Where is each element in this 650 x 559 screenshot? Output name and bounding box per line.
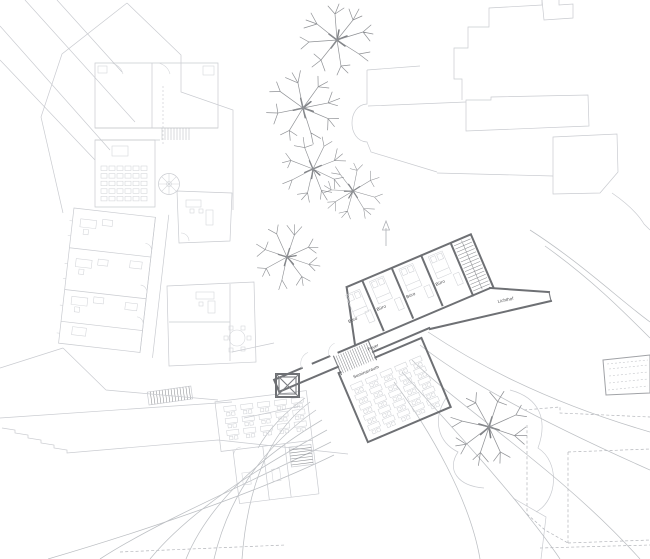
site-plan-page: Büro Büro Büro Büro Foyer Seminarraum Li… [0,0,650,559]
terrace-steps [2,428,348,454]
parcel-boundary-right [127,3,233,210]
terrain-contours [48,230,650,559]
room-label-buero-2: Büro [376,303,387,312]
neighbor-building-a2 [542,0,573,20]
planned-outline-dashed [120,407,650,552]
neighbor-building-c [553,134,618,194]
tree-icon [316,155,390,228]
existing-building [55,63,319,505]
site-plan-drawing: Büro Büro Büro Büro Foyer Seminarraum Li… [0,0,650,559]
road-lines [0,0,135,160]
room-label-buero-4: Büro [435,278,446,287]
tree-icon [300,4,373,75]
narrow-building-right [603,355,650,395]
neighbor-building-a [454,0,542,100]
room-label-seminarraum: Seminarraum [352,364,379,379]
terrace-line [0,402,232,418]
north-arrow-icon [383,221,390,246]
neighbor-building-b [466,95,589,131]
elevator-icon [276,374,299,397]
tree-icon [270,124,358,213]
trees [246,4,538,475]
room-label-buero-3: Büro [405,291,416,300]
parcel-boundary-left [41,3,127,213]
atrium-wall-upper [490,288,549,292]
tree-icon [441,379,539,475]
parcel-notch [352,66,437,172]
room-label-lichthof: Lichthof [497,296,515,304]
shrub-outline [438,398,484,488]
spiral-stair-icon [159,174,180,195]
room-label-buero-1: Büro [347,315,358,324]
tree-icon [246,215,329,299]
